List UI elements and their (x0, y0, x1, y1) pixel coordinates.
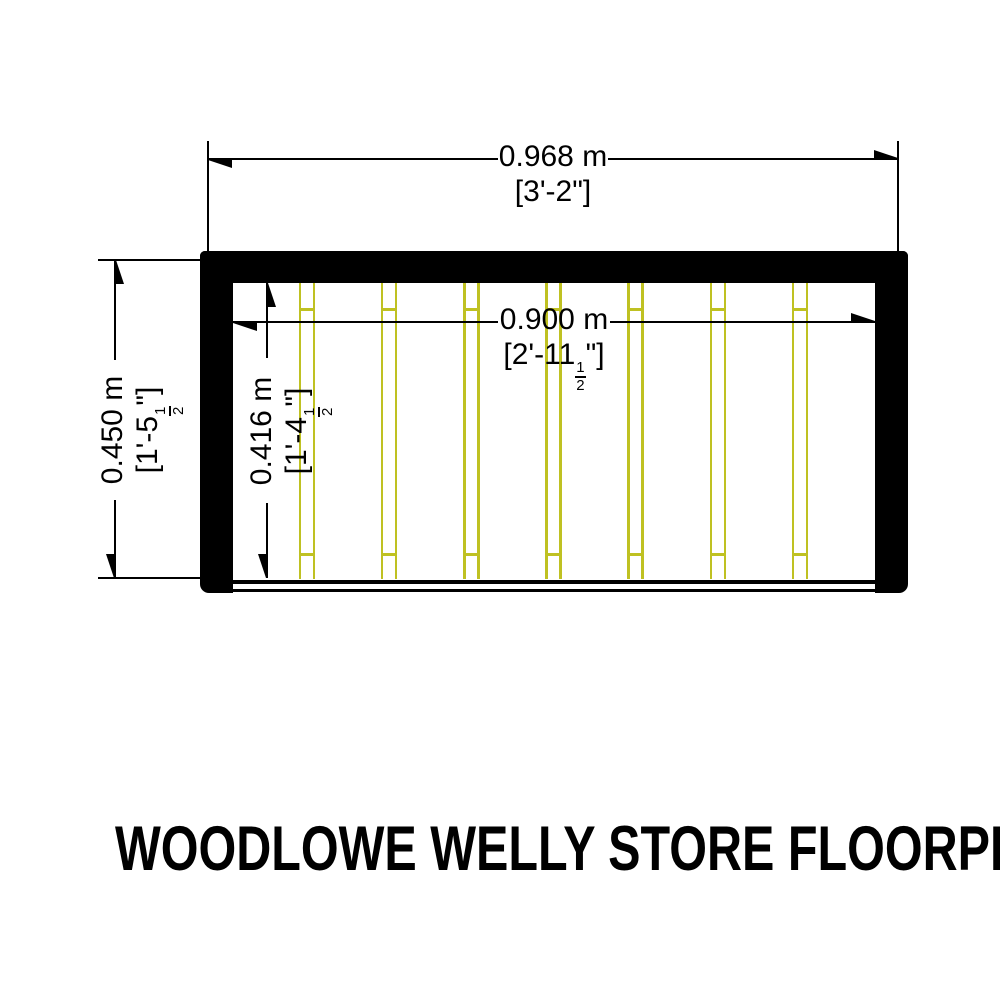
dim-inner-width-imperial: [2'-1112"] (404, 337, 704, 372)
joist (792, 283, 809, 579)
dim-inner-width-metric: 0.900 m (404, 302, 704, 337)
dim-inner-width-label: 0.900 m [2'-1112"] (404, 302, 704, 372)
dim-outer-width-label: 0.968 m [3'-2"] (403, 139, 703, 209)
dim-outer-depth-imperial: [1'-512"] (130, 330, 165, 530)
arrow-inner-width-left-icon (233, 323, 257, 331)
dim-outer-width-metric: 0.968 m (403, 139, 703, 174)
wall-right (875, 251, 908, 593)
dim-outer-width-imperial: [3'-2"] (403, 174, 703, 209)
arrow-inner-width-right-icon (851, 313, 875, 321)
dim-inner-depth-label: 0.416 m [1'-412"] (244, 331, 314, 531)
floorplan-title: WOODLOWE WELLY STORE FLOORPLAN (115, 818, 885, 881)
arrow-outer-width-left-icon (208, 160, 232, 168)
front-edge-inner-line (233, 589, 875, 592)
dim-inner-depth-metric: 0.416 m (244, 331, 279, 531)
arrow-outer-depth-top-icon (116, 260, 124, 284)
wall-left (200, 251, 233, 593)
dim-inner-depth-imperial: [1'-412"] (279, 331, 314, 531)
arrow-outer-depth-bottom-icon (106, 554, 114, 578)
front-edge-outer-line (233, 580, 875, 584)
dim-outer-depth-label: 0.450 m [1'-512"] (95, 330, 165, 530)
dim-outer-depth-metric: 0.450 m (95, 330, 130, 530)
joist (710, 283, 727, 579)
arrow-inner-depth-top-icon (268, 283, 276, 307)
arrow-inner-depth-bottom-icon (258, 554, 266, 578)
joist (381, 283, 398, 579)
wall-top (200, 251, 908, 283)
floorplan-canvas: 0.968 m [3'-2"] 0.450 m [1'-512"] 0.416 … (0, 0, 1000, 1000)
arrow-outer-width-right-icon (874, 150, 898, 158)
